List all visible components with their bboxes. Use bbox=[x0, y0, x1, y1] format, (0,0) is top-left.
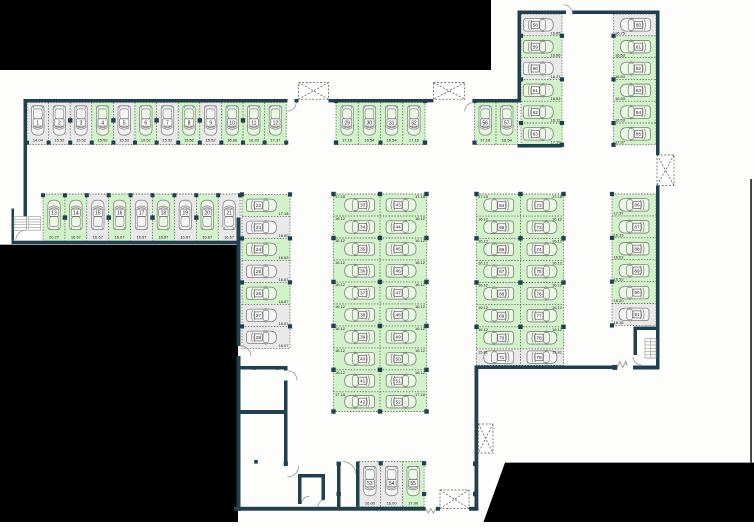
svg-text:16.12: 16.12 bbox=[415, 304, 426, 309]
svg-text:91: 91 bbox=[634, 312, 640, 317]
svg-text:16.12: 16.12 bbox=[552, 305, 563, 310]
svg-text:23: 23 bbox=[256, 225, 262, 230]
svg-text:17.18: 17.18 bbox=[278, 211, 289, 216]
svg-text:16.33: 16.33 bbox=[614, 233, 625, 238]
svg-text:16.63: 16.63 bbox=[278, 255, 289, 260]
svg-text:53: 53 bbox=[367, 481, 373, 487]
svg-text:17.00: 17.00 bbox=[408, 501, 419, 506]
svg-text:16.67: 16.67 bbox=[278, 277, 289, 282]
svg-text:16.66: 16.66 bbox=[550, 52, 561, 57]
svg-text:14.04: 14.04 bbox=[33, 137, 44, 142]
svg-text:15.52: 15.52 bbox=[119, 137, 130, 142]
svg-text:17.37: 17.37 bbox=[615, 140, 626, 145]
svg-text:16.12: 16.12 bbox=[478, 305, 489, 310]
svg-text:76: 76 bbox=[536, 291, 542, 296]
svg-text:18: 18 bbox=[161, 211, 167, 217]
svg-text:16.16: 16.16 bbox=[614, 320, 625, 325]
svg-text:86: 86 bbox=[634, 203, 640, 208]
svg-text:16.12: 16.12 bbox=[478, 216, 489, 221]
svg-text:16: 16 bbox=[117, 211, 123, 217]
svg-text:61: 61 bbox=[533, 88, 539, 93]
svg-text:16.75: 16.75 bbox=[615, 31, 626, 36]
svg-text:57: 57 bbox=[504, 120, 510, 126]
svg-text:12: 12 bbox=[273, 120, 279, 126]
svg-text:34: 34 bbox=[360, 225, 366, 230]
svg-text:19: 19 bbox=[183, 211, 189, 217]
svg-text:16.86: 16.86 bbox=[227, 137, 238, 142]
svg-text:21: 21 bbox=[226, 211, 232, 217]
svg-text:82: 82 bbox=[636, 66, 642, 71]
svg-text:70: 70 bbox=[499, 336, 505, 341]
svg-text:16.53: 16.53 bbox=[615, 74, 626, 79]
svg-text:17: 17 bbox=[139, 211, 145, 217]
svg-text:59: 59 bbox=[533, 44, 539, 49]
svg-text:16.12: 16.12 bbox=[415, 238, 426, 243]
svg-text:85: 85 bbox=[636, 132, 642, 137]
svg-text:42: 42 bbox=[360, 399, 366, 404]
svg-text:20: 20 bbox=[204, 211, 210, 217]
svg-text:17.16: 17.16 bbox=[409, 137, 420, 142]
svg-text:16.53: 16.53 bbox=[615, 118, 626, 123]
svg-text:26: 26 bbox=[256, 291, 262, 296]
svg-text:47: 47 bbox=[395, 291, 401, 296]
svg-text:51: 51 bbox=[395, 379, 401, 384]
svg-text:36: 36 bbox=[360, 269, 366, 274]
svg-text:9: 9 bbox=[209, 120, 212, 126]
svg-text:40: 40 bbox=[360, 357, 366, 362]
svg-text:48: 48 bbox=[395, 313, 401, 318]
svg-text:67: 67 bbox=[499, 269, 505, 274]
svg-text:83: 83 bbox=[636, 88, 642, 93]
svg-text:35: 35 bbox=[360, 247, 366, 252]
svg-text:71: 71 bbox=[499, 355, 505, 360]
svg-text:52: 52 bbox=[395, 399, 401, 404]
svg-text:16.12: 16.12 bbox=[478, 327, 489, 332]
svg-text:22: 22 bbox=[256, 203, 262, 208]
svg-text:16.54: 16.54 bbox=[364, 137, 375, 142]
svg-text:16.67: 16.67 bbox=[278, 299, 289, 304]
svg-text:16.67: 16.67 bbox=[202, 234, 213, 239]
svg-text:65: 65 bbox=[499, 225, 505, 230]
svg-text:15: 15 bbox=[95, 211, 101, 217]
svg-text:16.12: 16.12 bbox=[335, 370, 346, 375]
svg-text:16.67: 16.67 bbox=[93, 234, 104, 239]
svg-text:37: 37 bbox=[360, 291, 366, 296]
svg-text:16.12: 16.12 bbox=[335, 260, 346, 265]
svg-text:17.18: 17.18 bbox=[478, 194, 489, 199]
svg-text:58: 58 bbox=[533, 23, 539, 28]
svg-text:3: 3 bbox=[80, 120, 83, 126]
svg-text:30: 30 bbox=[367, 120, 373, 126]
svg-text:16.12: 16.12 bbox=[478, 261, 489, 266]
svg-text:87: 87 bbox=[634, 225, 640, 230]
svg-text:55: 55 bbox=[410, 481, 416, 487]
svg-text:10: 10 bbox=[229, 120, 235, 126]
svg-text:16.67: 16.67 bbox=[71, 234, 82, 239]
svg-text:2: 2 bbox=[58, 120, 61, 126]
svg-text:54: 54 bbox=[389, 481, 395, 487]
svg-text:16.12: 16.12 bbox=[478, 239, 489, 244]
svg-text:16.53: 16.53 bbox=[550, 96, 561, 101]
svg-text:68: 68 bbox=[499, 291, 505, 296]
svg-text:16.53: 16.53 bbox=[615, 96, 626, 101]
svg-text:31: 31 bbox=[389, 120, 395, 126]
svg-text:15.81: 15.81 bbox=[552, 349, 563, 354]
svg-text:4: 4 bbox=[101, 120, 104, 126]
svg-text:50: 50 bbox=[395, 357, 401, 362]
svg-text:69: 69 bbox=[499, 313, 505, 318]
svg-text:16.53: 16.53 bbox=[614, 254, 625, 259]
svg-text:15.81: 15.81 bbox=[478, 349, 489, 354]
svg-text:16.53: 16.53 bbox=[615, 52, 626, 57]
svg-text:13: 13 bbox=[51, 211, 57, 217]
svg-text:43: 43 bbox=[395, 203, 401, 208]
svg-text:16.12: 16.12 bbox=[335, 238, 346, 243]
svg-text:16.54: 16.54 bbox=[387, 137, 398, 142]
svg-text:16.67: 16.67 bbox=[278, 321, 289, 326]
svg-text:16.12: 16.12 bbox=[335, 348, 346, 353]
svg-text:49: 49 bbox=[395, 335, 401, 340]
svg-text:16.12: 16.12 bbox=[415, 348, 426, 353]
svg-text:41: 41 bbox=[360, 379, 366, 384]
svg-text:33: 33 bbox=[360, 203, 366, 208]
svg-text:15.52: 15.52 bbox=[54, 137, 65, 142]
svg-text:90: 90 bbox=[634, 290, 640, 295]
svg-text:75: 75 bbox=[536, 269, 542, 274]
svg-text:16.12: 16.12 bbox=[415, 282, 426, 287]
svg-text:62: 62 bbox=[533, 110, 539, 115]
svg-text:16.67: 16.67 bbox=[115, 234, 126, 239]
svg-text:16.12: 16.12 bbox=[335, 282, 346, 287]
svg-text:60: 60 bbox=[533, 66, 539, 71]
svg-text:88: 88 bbox=[634, 246, 640, 251]
svg-text:16.12: 16.12 bbox=[335, 326, 346, 331]
svg-text:16.12: 16.12 bbox=[552, 216, 563, 221]
svg-text:16.00: 16.00 bbox=[387, 501, 398, 506]
svg-text:17.37: 17.37 bbox=[614, 211, 625, 216]
svg-text:63: 63 bbox=[533, 132, 539, 137]
svg-text:16.54: 16.54 bbox=[502, 137, 513, 142]
svg-text:16.67: 16.67 bbox=[180, 234, 191, 239]
svg-text:16.12: 16.12 bbox=[335, 304, 346, 309]
svg-text:32: 32 bbox=[411, 120, 417, 126]
svg-text:45: 45 bbox=[395, 247, 401, 252]
svg-text:81: 81 bbox=[636, 44, 642, 49]
svg-text:16.67: 16.67 bbox=[158, 234, 169, 239]
svg-text:44: 44 bbox=[395, 225, 401, 230]
svg-text:16.12: 16.12 bbox=[415, 216, 426, 221]
svg-text:16.12: 16.12 bbox=[552, 283, 563, 288]
svg-text:16.12: 16.12 bbox=[415, 260, 426, 265]
svg-text:74: 74 bbox=[536, 247, 542, 252]
svg-text:16.67: 16.67 bbox=[224, 234, 235, 239]
svg-text:16.67: 16.67 bbox=[136, 234, 147, 239]
svg-text:7: 7 bbox=[166, 120, 169, 126]
svg-text:25: 25 bbox=[256, 269, 262, 274]
svg-text:73: 73 bbox=[536, 225, 542, 230]
svg-text:28: 28 bbox=[256, 335, 262, 340]
svg-text:16.65: 16.65 bbox=[550, 31, 561, 36]
svg-text:16.12: 16.12 bbox=[415, 326, 426, 331]
svg-text:15.52: 15.52 bbox=[141, 137, 152, 142]
svg-text:79: 79 bbox=[536, 355, 542, 360]
svg-text:16.12: 16.12 bbox=[552, 261, 563, 266]
svg-text:17.18: 17.18 bbox=[335, 392, 346, 397]
svg-text:17.18: 17.18 bbox=[335, 194, 346, 199]
svg-text:16.27: 16.27 bbox=[550, 74, 561, 79]
svg-text:17.19: 17.19 bbox=[550, 140, 561, 145]
svg-text:72: 72 bbox=[536, 203, 542, 208]
svg-text:17.16: 17.16 bbox=[342, 137, 353, 142]
svg-text:78: 78 bbox=[536, 336, 542, 341]
svg-text:15.52: 15.52 bbox=[184, 137, 195, 142]
svg-text:16.33: 16.33 bbox=[249, 137, 260, 142]
svg-text:15.52: 15.52 bbox=[98, 137, 109, 142]
svg-text:66: 66 bbox=[499, 247, 505, 252]
svg-text:20.27: 20.27 bbox=[49, 234, 60, 239]
svg-text:39: 39 bbox=[360, 335, 366, 340]
svg-text:64: 64 bbox=[499, 203, 505, 208]
svg-text:5: 5 bbox=[123, 120, 126, 126]
svg-text:29: 29 bbox=[344, 120, 350, 126]
svg-text:17.18: 17.18 bbox=[415, 392, 426, 397]
svg-text:16.07: 16.07 bbox=[278, 343, 289, 348]
svg-text:38: 38 bbox=[360, 313, 366, 318]
svg-text:89: 89 bbox=[634, 268, 640, 273]
svg-text:80: 80 bbox=[636, 23, 642, 28]
svg-text:17.37: 17.37 bbox=[270, 137, 281, 142]
svg-text:16.00: 16.00 bbox=[278, 233, 289, 238]
svg-text:16.12: 16.12 bbox=[335, 216, 346, 221]
svg-text:15.52: 15.52 bbox=[206, 137, 217, 142]
svg-text:46: 46 bbox=[395, 269, 401, 274]
svg-text:16.12: 16.12 bbox=[415, 370, 426, 375]
svg-text:8: 8 bbox=[188, 120, 191, 126]
svg-text:1: 1 bbox=[36, 120, 39, 126]
svg-text:16.20: 16.20 bbox=[614, 298, 625, 303]
svg-text:11: 11 bbox=[251, 120, 256, 126]
svg-text:27: 27 bbox=[256, 313, 262, 318]
svg-text:16.12: 16.12 bbox=[550, 118, 561, 123]
svg-text:17.18: 17.18 bbox=[552, 194, 563, 199]
svg-text:56: 56 bbox=[482, 120, 488, 126]
svg-text:16.12: 16.12 bbox=[552, 239, 563, 244]
svg-text:6: 6 bbox=[144, 120, 147, 126]
svg-text:16.00: 16.00 bbox=[365, 501, 376, 506]
svg-text:17.18: 17.18 bbox=[415, 194, 426, 199]
svg-text:84: 84 bbox=[636, 110, 642, 115]
svg-text:16.12: 16.12 bbox=[478, 283, 489, 288]
svg-text:15.52: 15.52 bbox=[76, 137, 87, 142]
svg-text:15.52: 15.52 bbox=[162, 137, 173, 142]
svg-text:14: 14 bbox=[73, 211, 79, 217]
svg-text:16.53: 16.53 bbox=[614, 276, 625, 281]
svg-text:17.16: 17.16 bbox=[480, 137, 491, 142]
svg-text:16.12: 16.12 bbox=[552, 327, 563, 332]
svg-text:77: 77 bbox=[536, 313, 542, 318]
svg-text:24: 24 bbox=[256, 247, 262, 252]
